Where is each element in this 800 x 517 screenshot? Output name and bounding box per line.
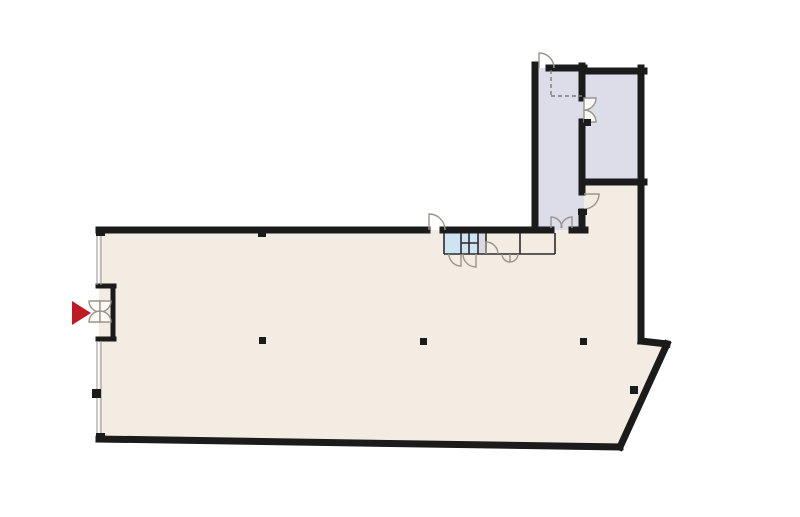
column-hall-center (420, 338, 427, 345)
column-hall-left (259, 337, 266, 344)
column-top-wall (258, 231, 266, 237)
room-upper-left (535, 68, 584, 230)
floor-plan-viewer (0, 0, 800, 517)
cabin-blue-left (444, 233, 461, 254)
floor-plan-svg (0, 0, 800, 517)
column-facade-left (92, 389, 101, 398)
exterior-and-structural-walls-11 (641, 341, 667, 344)
wall-stop-upper-door (584, 119, 591, 126)
diagonal-wall-notch (630, 386, 638, 394)
cabin-gray (478, 233, 486, 254)
corner-bottom-left (96, 433, 105, 441)
column-hall-right (580, 338, 587, 345)
wall-stop-arm-door (578, 209, 587, 215)
cabin-white-right (520, 233, 555, 254)
room-upper-right (582, 71, 643, 182)
corner-top-left (96, 228, 105, 236)
